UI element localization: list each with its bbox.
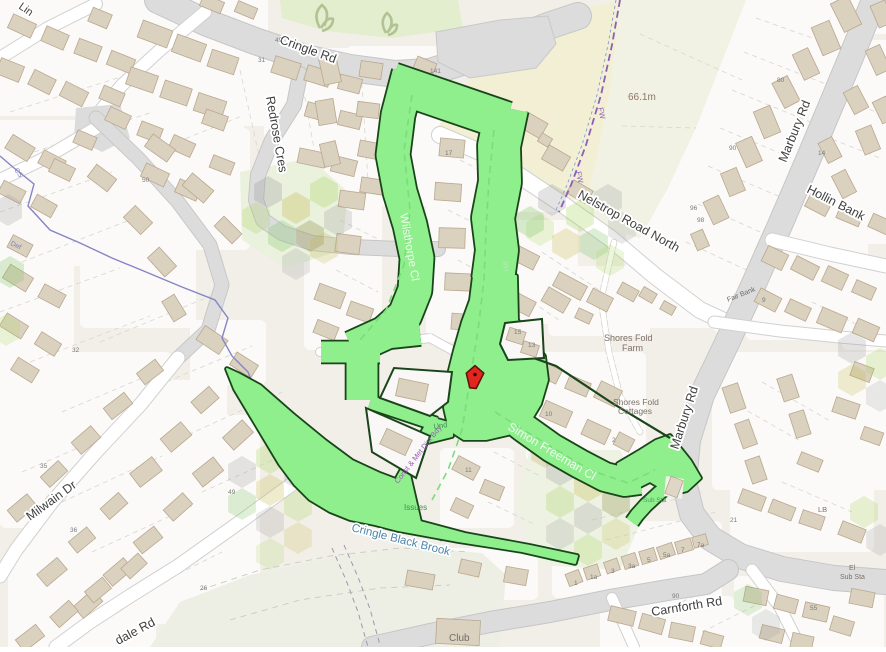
svg-text:3a: 3a bbox=[628, 563, 636, 570]
svg-text:13: 13 bbox=[528, 342, 536, 349]
svg-text:10: 10 bbox=[545, 411, 553, 418]
svg-text:66.1m: 66.1m bbox=[628, 92, 656, 103]
svg-text:5: 5 bbox=[647, 557, 651, 564]
svg-text:Sub Sta: Sub Sta bbox=[643, 497, 667, 504]
svg-text:5a: 5a bbox=[663, 552, 671, 559]
svg-text:36: 36 bbox=[70, 527, 78, 534]
svg-text:LB: LB bbox=[818, 505, 827, 514]
svg-text:49: 49 bbox=[275, 37, 283, 44]
svg-text:Cottages: Cottages bbox=[618, 406, 652, 416]
svg-text:14: 14 bbox=[818, 150, 826, 157]
svg-text:49: 49 bbox=[228, 489, 236, 496]
svg-text:141: 141 bbox=[430, 68, 441, 75]
svg-text:El: El bbox=[849, 565, 856, 572]
svg-text:Shores Fold: Shores Fold bbox=[604, 333, 653, 343]
svg-text:Farm: Farm bbox=[622, 343, 643, 353]
svg-text:Club: Club bbox=[449, 633, 470, 644]
svg-text:7: 7 bbox=[681, 547, 685, 554]
svg-text:1a: 1a bbox=[590, 574, 598, 581]
svg-text:Issues: Issues bbox=[404, 503, 427, 512]
svg-text:21: 21 bbox=[730, 517, 738, 524]
svg-text:55: 55 bbox=[810, 605, 818, 612]
svg-text:98: 98 bbox=[697, 217, 705, 224]
svg-text:9: 9 bbox=[762, 297, 766, 304]
svg-text:31: 31 bbox=[258, 57, 266, 64]
svg-text:2: 2 bbox=[612, 437, 616, 444]
svg-text:96: 96 bbox=[690, 205, 698, 212]
svg-text:50: 50 bbox=[142, 177, 150, 184]
svg-text:90: 90 bbox=[672, 593, 680, 600]
svg-text:32: 32 bbox=[72, 347, 80, 354]
svg-text:35: 35 bbox=[40, 463, 48, 470]
svg-text:3: 3 bbox=[611, 568, 615, 575]
svg-text:80: 80 bbox=[777, 77, 785, 84]
svg-text:1: 1 bbox=[574, 580, 578, 587]
svg-text:7a: 7a bbox=[697, 542, 705, 549]
svg-text:Sub Sta: Sub Sta bbox=[840, 574, 865, 581]
svg-text:90: 90 bbox=[729, 145, 737, 152]
svg-text:11: 11 bbox=[465, 467, 472, 474]
svg-text:15: 15 bbox=[514, 329, 522, 336]
svg-text:17: 17 bbox=[445, 150, 453, 157]
svg-text:26: 26 bbox=[200, 585, 208, 592]
